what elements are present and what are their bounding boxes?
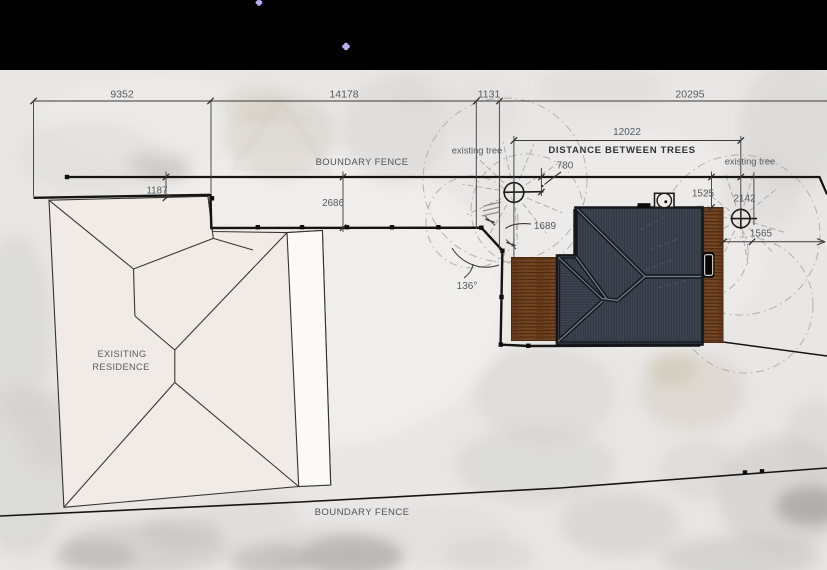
svg-text:9352: 9352 <box>110 89 134 101</box>
svg-text:RESIDENCE: RESIDENCE <box>92 362 149 372</box>
svg-text:existing tree: existing tree <box>725 156 776 167</box>
svg-text:12022: 12022 <box>613 127 641 138</box>
svg-text:14178: 14178 <box>329 89 358 101</box>
svg-text:BOUNDARY FENCE: BOUNDARY FENCE <box>315 507 410 518</box>
svg-text:136°: 136° <box>457 281 478 292</box>
svg-text:EXISITING: EXISITING <box>97 349 146 359</box>
svg-text:DISTANCE BETWEEN TREES: DISTANCE BETWEEN TREES <box>548 145 695 156</box>
svg-text:2686: 2686 <box>322 198 344 209</box>
svg-text:20295: 20295 <box>675 89 704 101</box>
svg-text:780: 780 <box>557 161 574 172</box>
svg-text:1187: 1187 <box>146 186 167 197</box>
svg-text:1565: 1565 <box>750 229 773 240</box>
svg-text:1525: 1525 <box>692 189 715 200</box>
svg-text:existing tree: existing tree <box>452 145 503 156</box>
svg-text:1131: 1131 <box>478 89 501 101</box>
svg-text:1689: 1689 <box>534 221 557 232</box>
svg-text:BOUNDARY FENCE: BOUNDARY FENCE <box>316 156 409 167</box>
svg-text:2142: 2142 <box>733 194 756 205</box>
